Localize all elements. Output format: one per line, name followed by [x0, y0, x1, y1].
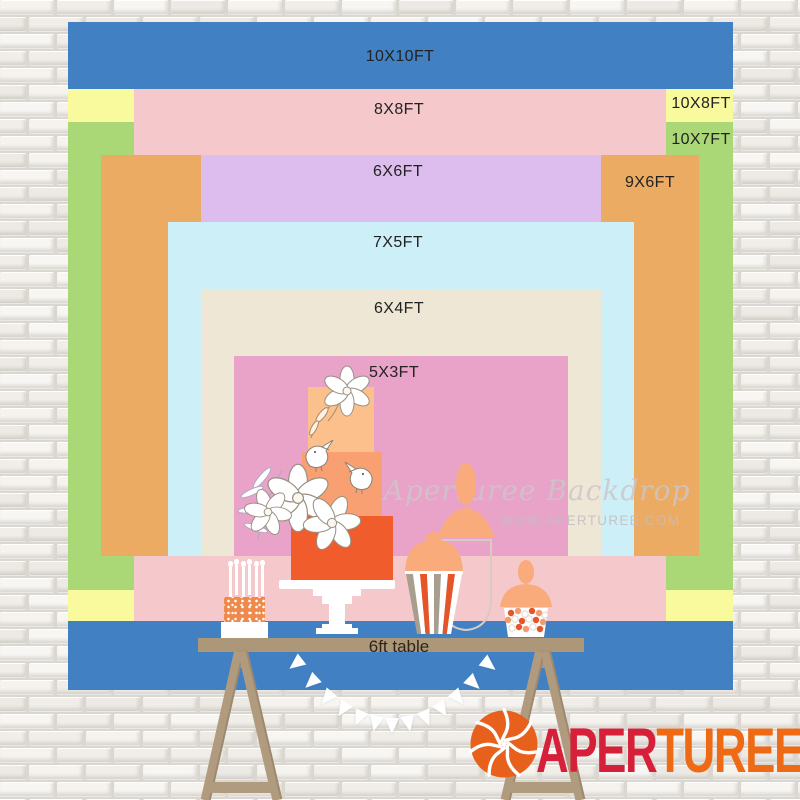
- brand-logo: APERTUREE: [468, 706, 798, 792]
- brick: [770, 595, 800, 609]
- brick: [257, 697, 311, 711]
- brick: [770, 425, 800, 439]
- logo-text-red: APER: [536, 716, 656, 786]
- brick: [770, 323, 800, 337]
- brick: [770, 51, 800, 65]
- brick: [57, 748, 111, 762]
- brick: [114, 0, 168, 14]
- watermark-url: WWW.APERTUREE.COM: [500, 513, 681, 528]
- sawhorse-crossbar: [208, 782, 272, 793]
- brick: [0, 595, 26, 609]
- brick: [0, 782, 54, 796]
- brick: [399, 782, 453, 796]
- brick: [0, 476, 54, 490]
- brick: [0, 442, 54, 456]
- brick: [0, 85, 26, 99]
- size-label-5x3: 5X3FT: [369, 364, 419, 382]
- brick: [741, 136, 795, 150]
- brick: [228, 748, 282, 762]
- cake-top-tier: [308, 387, 374, 452]
- brick: [29, 731, 83, 745]
- brick: [741, 442, 795, 456]
- brick: [0, 187, 26, 201]
- brick: [0, 493, 26, 507]
- brick: [285, 0, 339, 14]
- brick: [0, 238, 54, 252]
- brick: [770, 459, 800, 473]
- brick: [0, 748, 54, 762]
- brick: [770, 289, 800, 303]
- brick: [770, 561, 800, 575]
- brick: [0, 544, 54, 558]
- brick: [741, 34, 795, 48]
- brick: [371, 731, 425, 745]
- brick: [741, 476, 795, 490]
- brick: [741, 204, 795, 218]
- brick: [285, 714, 339, 728]
- brick: [399, 714, 453, 728]
- brick: [0, 221, 26, 235]
- brick: [0, 663, 26, 677]
- brick: [143, 765, 197, 779]
- brick: [770, 85, 800, 99]
- watermark-script: Aperturee Backdrop: [384, 474, 691, 507]
- brick: [0, 272, 54, 286]
- size-label-6x6: 6X6FT: [373, 163, 423, 181]
- brick: [143, 731, 197, 745]
- brick: [741, 170, 795, 184]
- brick: [0, 119, 26, 133]
- aperture-icon: [468, 708, 540, 780]
- cake-stand-stem: [329, 604, 345, 624]
- brick: [0, 102, 54, 116]
- size-label-10x7: 10X7FT: [671, 131, 730, 149]
- brick: [0, 510, 54, 524]
- brick: [0, 425, 26, 439]
- brick: [314, 731, 368, 745]
- brick: [0, 612, 54, 626]
- brick: [0, 51, 26, 65]
- brick: [171, 0, 225, 14]
- logo-text-orange: TUREE: [656, 716, 800, 786]
- brick: [456, 0, 510, 14]
- size-label-9x6: 9X6FT: [625, 174, 675, 192]
- brick: [285, 782, 339, 796]
- brick: [0, 408, 54, 422]
- size-label-10x10: 10X10FT: [366, 48, 435, 66]
- brick: [285, 748, 339, 762]
- brick: [741, 680, 795, 694]
- brick: [0, 391, 26, 405]
- candle: [229, 567, 232, 597]
- brick: [0, 204, 54, 218]
- candle: [235, 565, 238, 595]
- brick: [0, 646, 54, 660]
- brick: [0, 459, 26, 473]
- brick: [0, 578, 54, 592]
- brick: [741, 578, 795, 592]
- brick: [314, 765, 368, 779]
- brick: [741, 306, 795, 320]
- brick: [114, 782, 168, 796]
- brick: [0, 714, 54, 728]
- brick: [342, 714, 396, 728]
- brick: [0, 34, 54, 48]
- brick: [513, 0, 567, 14]
- brick: [0, 527, 26, 541]
- brick: [371, 765, 425, 779]
- brick: [770, 493, 800, 507]
- brick: [0, 17, 26, 31]
- brick: [741, 612, 795, 626]
- brick: [0, 680, 54, 694]
- brick: [0, 340, 54, 354]
- brick: [399, 748, 453, 762]
- brick: [741, 408, 795, 422]
- brick: [399, 0, 453, 14]
- brick: [29, 697, 83, 711]
- brick: [29, 765, 83, 779]
- brick: [0, 697, 26, 711]
- brick: [770, 629, 800, 643]
- brick: [57, 0, 111, 14]
- size-label-7x5: 7X5FT: [373, 234, 423, 252]
- brick: [0, 561, 26, 575]
- brick: [342, 782, 396, 796]
- size-label-10x8: 10X8FT: [671, 95, 730, 113]
- brick: [371, 697, 425, 711]
- brick: [770, 17, 800, 31]
- brick: [741, 68, 795, 82]
- sprinkle-cake: [224, 597, 265, 622]
- candle: [255, 567, 258, 597]
- brick: [684, 0, 738, 14]
- brick: [741, 340, 795, 354]
- brick: [0, 374, 54, 388]
- backdrop-size-chart: 10X10FT 8X8FT 10X8FT 10X7FT 6X6FT 9X6FT …: [0, 0, 800, 800]
- brick: [770, 153, 800, 167]
- brick: [770, 391, 800, 405]
- brick: [0, 255, 26, 269]
- candle: [261, 566, 264, 596]
- brick: [0, 306, 54, 320]
- brick: [86, 731, 140, 745]
- candle: [248, 565, 251, 595]
- brick: [57, 714, 111, 728]
- logo-wordmark: APERTUREE: [536, 720, 800, 783]
- brick: [114, 748, 168, 762]
- brick: [770, 119, 800, 133]
- brick: [741, 272, 795, 286]
- brick: [741, 510, 795, 524]
- brick: [0, 629, 26, 643]
- brick: [314, 697, 368, 711]
- brick: [741, 374, 795, 388]
- brick: [770, 221, 800, 235]
- brick: [0, 0, 54, 14]
- brick: [57, 782, 111, 796]
- brick: [741, 646, 795, 660]
- brick: [570, 0, 624, 14]
- brick: [0, 323, 26, 337]
- brick: [0, 68, 54, 82]
- brick: [200, 731, 254, 745]
- brick: [0, 170, 54, 184]
- brick: [741, 544, 795, 558]
- brick: [627, 0, 681, 14]
- brick: [86, 765, 140, 779]
- brick: [770, 357, 800, 371]
- brick: [0, 357, 26, 371]
- cake-stand-foot: [316, 628, 358, 634]
- cake-stand-neck: [313, 589, 361, 596]
- table-label: 6ft table: [369, 637, 430, 657]
- cake-stand-neck: [322, 596, 352, 604]
- brick: [0, 153, 26, 167]
- size-label-8x8: 8X8FT: [374, 101, 424, 119]
- brick: [770, 663, 800, 677]
- brick: [770, 255, 800, 269]
- brick: [770, 527, 800, 541]
- brick: [342, 0, 396, 14]
- brick: [0, 765, 26, 779]
- cake-stand-plate: [279, 580, 395, 589]
- brick: [342, 748, 396, 762]
- cake-middle-tier: [302, 452, 382, 516]
- brick: [741, 102, 795, 116]
- candle: [242, 567, 245, 597]
- brick: [86, 697, 140, 711]
- brick: [114, 714, 168, 728]
- cake-box: [221, 622, 268, 638]
- brick: [228, 0, 282, 14]
- brick: [741, 0, 795, 14]
- brick: [0, 731, 26, 745]
- size-label-6x4: 6X4FT: [374, 300, 424, 318]
- brick: [0, 136, 54, 150]
- brick: [741, 238, 795, 252]
- brick: [770, 187, 800, 201]
- brick: [143, 697, 197, 711]
- cake-bottom-tier: [291, 516, 393, 580]
- brick: [0, 289, 26, 303]
